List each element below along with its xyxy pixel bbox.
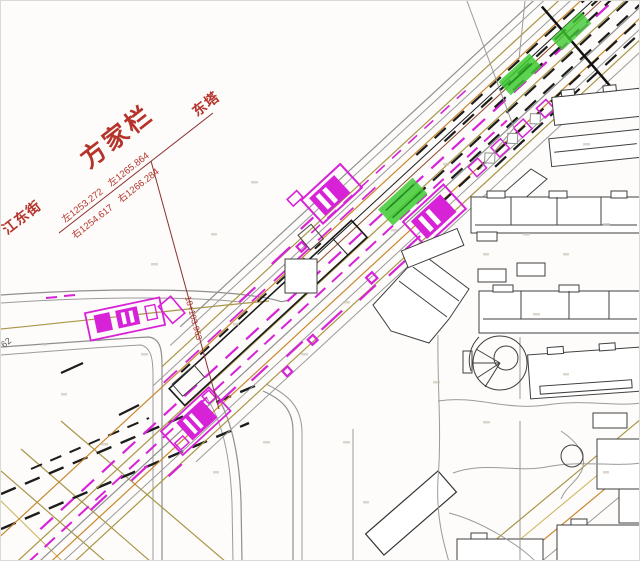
mileage-label: 18+103.963: [183, 295, 204, 341]
corridor: [1, 1, 640, 561]
annotation-red: 方家栏 江东街 左1253.272 左1265.864 右1254.617 右1…: [1, 88, 222, 409]
station-structure-west-hatched: [85, 297, 165, 340]
street-name-label: 江东街: [1, 197, 44, 237]
edge-mark-label: 62: [1, 336, 13, 350]
warehouse-rotated: [366, 471, 457, 555]
site-plan-drawing: 方家栏 江东街 左1253.272 左1265.864 右1254.617 右1…: [1, 1, 640, 561]
apartment-block-1: [471, 197, 640, 233]
east-tower-label: 东塔: [189, 88, 222, 119]
limit-marks-west-road: [46, 295, 75, 298]
buildings-east: [457, 1, 640, 561]
metro-alignment-line-1: [40, 1, 640, 529]
station-box-outline: [169, 220, 367, 405]
mileage-leader-line: [151, 161, 219, 409]
site-plan-canvas[interactable]: 方家栏 江东街 左1253.272 左1265.864 右1254.617 右1…: [0, 0, 640, 561]
apartment-block-2: [479, 291, 640, 333]
station-entrance-a: [287, 157, 362, 231]
